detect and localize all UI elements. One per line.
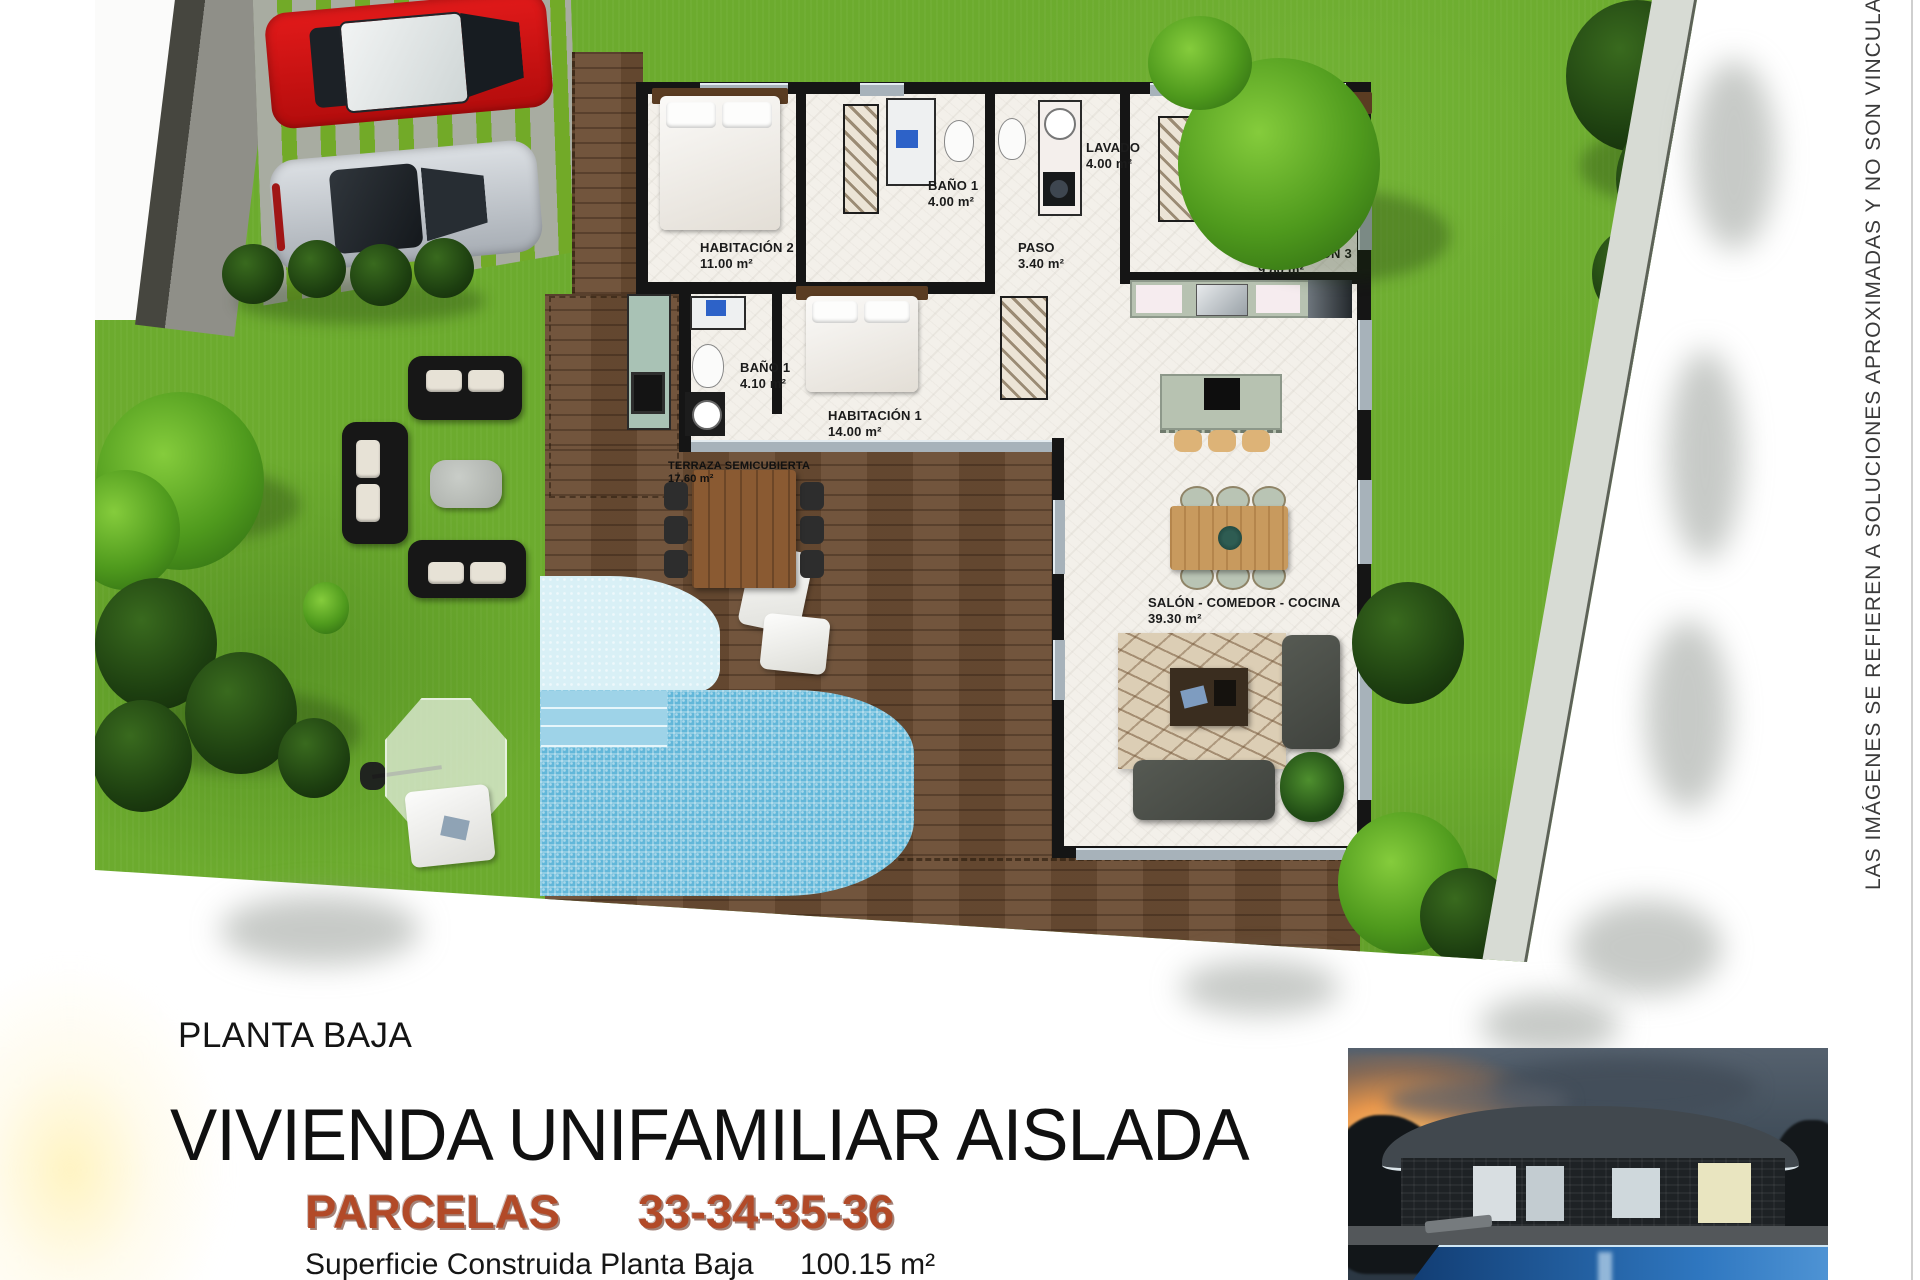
cushion: [468, 370, 504, 392]
fridge: [1308, 280, 1352, 318]
wall: [796, 82, 806, 294]
tree: [92, 700, 192, 812]
wardrobe: [1000, 296, 1048, 400]
tree: [1352, 582, 1464, 704]
cooktop: [1204, 378, 1240, 410]
wall: [772, 294, 782, 414]
room-label-bano1a: BAÑO 1 4.00 m²: [928, 178, 978, 210]
toilet: [944, 120, 974, 162]
cushion: [356, 440, 380, 478]
room-label-terraza: TERRAZA SEMICUBIERTA 17.60 m²: [668, 460, 810, 487]
room-area: 14.00 m²: [828, 424, 922, 440]
bed-pillow: [666, 102, 716, 128]
outdoor-chair: [800, 550, 824, 578]
shower-head: [896, 130, 918, 148]
bed-pillow: [864, 301, 910, 323]
room-label-bano1b: BAÑO 1 4.10 m²: [740, 360, 790, 392]
sofa: [1133, 760, 1275, 820]
indoor-plant: [1280, 752, 1344, 822]
outside-shadow: [1180, 960, 1340, 1015]
parcels-label: PARCELAS: [305, 1184, 560, 1239]
outdoor-dining-table: [692, 470, 796, 588]
outdoor-chair: [664, 550, 688, 578]
outdoor-chair: [800, 516, 824, 544]
outside-shadow: [220, 895, 420, 965]
cushion: [428, 562, 464, 584]
bar-stool: [1174, 430, 1202, 452]
room-label-paso: PASO 3.40 m²: [1018, 240, 1064, 272]
toilet: [692, 344, 724, 388]
parcels-numbers: 33-34-35-36: [638, 1184, 894, 1239]
window: [860, 83, 904, 96]
page-edge-line: [1911, 0, 1913, 1280]
toilet: [998, 118, 1026, 160]
window: [691, 440, 1052, 452]
room-name: LAVADO: [1086, 140, 1140, 155]
tree: [303, 582, 349, 634]
car-roof: [338, 11, 470, 113]
outside-shadow: [1668, 350, 1742, 560]
outside-shadow: [1572, 900, 1722, 995]
tree: [288, 240, 346, 298]
room-name: PASO: [1018, 240, 1055, 255]
garden-sofa: [342, 422, 408, 544]
room-name: SALÓN - COMEDOR - COCINA: [1148, 595, 1341, 610]
washer-door: [1050, 180, 1068, 198]
tree: [414, 238, 474, 298]
car-glass-roof: [329, 163, 424, 254]
tree: [350, 244, 412, 306]
surface-value: 100.15 m²: [800, 1248, 935, 1280]
villa-photo: [1348, 1048, 1828, 1280]
kitchen-cabinet: [1256, 285, 1300, 313]
bbq-grill: [631, 372, 665, 414]
lit-window: [1526, 1166, 1564, 1221]
sink: [692, 400, 722, 430]
tree: [278, 718, 350, 798]
outside-shadow: [1480, 995, 1620, 1055]
wardrobe: [843, 104, 879, 214]
window: [1053, 500, 1065, 574]
room-area: 39.30 m²: [1148, 611, 1341, 627]
room-area: 4.00 m²: [1086, 156, 1140, 172]
deck-left-strip: [572, 52, 643, 302]
room-area: 4.00 m²: [928, 194, 978, 210]
wall: [985, 94, 995, 294]
room-name: TERRAZA SEMICUBIERTA: [668, 460, 810, 472]
kitchen-sink: [1196, 284, 1248, 316]
outside-shadow: [1646, 620, 1730, 810]
tree: [1148, 16, 1252, 110]
sun-lounger: [759, 613, 830, 676]
room-name: BAÑO 1: [928, 178, 978, 193]
cushion: [426, 370, 462, 392]
bar-stool: [1208, 430, 1236, 452]
sofa: [1282, 635, 1340, 749]
pool-steps: [541, 691, 667, 747]
garden-sofa: [408, 356, 522, 420]
shower-head: [706, 300, 726, 316]
kitchen-cabinet: [1136, 285, 1182, 313]
lit-window: [1698, 1163, 1751, 1223]
room-label-lavado: LAVADO 4.00 m²: [1086, 140, 1140, 172]
lit-window: [1473, 1166, 1516, 1221]
round-basin: [1044, 108, 1076, 140]
pool-light-streak: [1598, 1252, 1612, 1280]
table-centerpiece: [1218, 526, 1242, 550]
room-name: BAÑO 1: [740, 360, 790, 375]
room-name: HABITACIÓN 1: [828, 408, 922, 423]
garden-sofa: [408, 540, 526, 598]
tree: [70, 470, 180, 590]
window: [1358, 480, 1372, 564]
bed-pillow: [722, 102, 772, 128]
tray: [1214, 680, 1236, 706]
bed-pillow: [812, 301, 858, 323]
outdoor-chair: [664, 516, 688, 544]
floor-label: PLANTA BAJA: [178, 1016, 412, 1056]
room-area: 11.00 m²: [700, 256, 794, 272]
wall: [1120, 94, 1130, 284]
parcels-row: PARCELAS 33-34-35-36: [305, 1184, 894, 1239]
room-label-salon: SALÓN - COMEDOR - COCINA 39.30 m²: [1148, 595, 1341, 627]
bar-stool: [1242, 430, 1270, 452]
outside-shadow: [1692, 60, 1776, 250]
lit-window: [1612, 1168, 1660, 1218]
wall: [636, 82, 648, 294]
window: [1358, 320, 1372, 410]
window: [1076, 848, 1346, 860]
cushion: [470, 562, 506, 584]
room-area: 4.10 m²: [740, 376, 790, 392]
cushion: [356, 484, 380, 522]
room-label-habitacion2: HABITACIÓN 2 11.00 m²: [700, 240, 794, 272]
room-label-habitacion1: HABITACIÓN 1 14.00 m²: [828, 408, 922, 440]
surface-label: Superficie Construida Planta Baja: [305, 1248, 754, 1280]
terrace-strip: [1348, 1226, 1828, 1245]
stone-coffee-table: [430, 460, 502, 508]
brochure-page: HABITACIÓN 2 11.00 m² BAÑO 1 4.00 m² LAV…: [0, 0, 1920, 1280]
tree: [222, 244, 284, 304]
photo-pool: [1406, 1245, 1828, 1280]
room-area: 17.60 m²: [668, 473, 810, 486]
page-title: VIVIENDA UNIFAMILIAR AISLADA: [170, 1094, 1249, 1177]
room-area: 3.40 m²: [1018, 256, 1064, 272]
vertical-disclaimer: LAS IMÁGENES SE REFIEREN A SOLUCIONES AP…: [1862, 0, 1896, 890]
window: [1053, 640, 1065, 700]
room-name: HABITACIÓN 2: [700, 240, 794, 255]
